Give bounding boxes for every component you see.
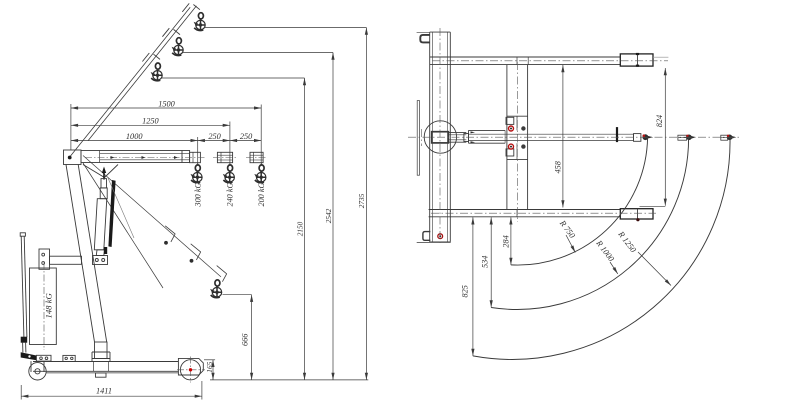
svg-text:250: 250 (240, 132, 253, 141)
svg-text:458: 458 (554, 160, 563, 173)
svg-text:240 kG: 240 kG (226, 183, 235, 207)
svg-text:200 kG: 200 kG (257, 183, 266, 207)
svg-text:165: 165 (205, 361, 214, 372)
svg-text:1500: 1500 (158, 99, 175, 108)
svg-text:824: 824 (655, 115, 664, 127)
svg-text:2542: 2542 (324, 208, 333, 223)
svg-text:825: 825 (461, 285, 470, 297)
svg-text:666: 666 (241, 333, 250, 346)
svg-text:1250: 1250 (142, 117, 159, 126)
svg-text:2150: 2150 (296, 221, 305, 236)
svg-text:148 kG: 148 kG (44, 292, 54, 318)
svg-text:284: 284 (502, 235, 511, 247)
svg-text:1411: 1411 (96, 386, 112, 395)
svg-text:300 kG: 300 kG (193, 183, 202, 208)
svg-text:2735: 2735 (357, 193, 366, 208)
svg-text:534: 534 (481, 256, 490, 268)
svg-text:1000: 1000 (126, 132, 143, 141)
svg-text:250: 250 (208, 132, 221, 141)
